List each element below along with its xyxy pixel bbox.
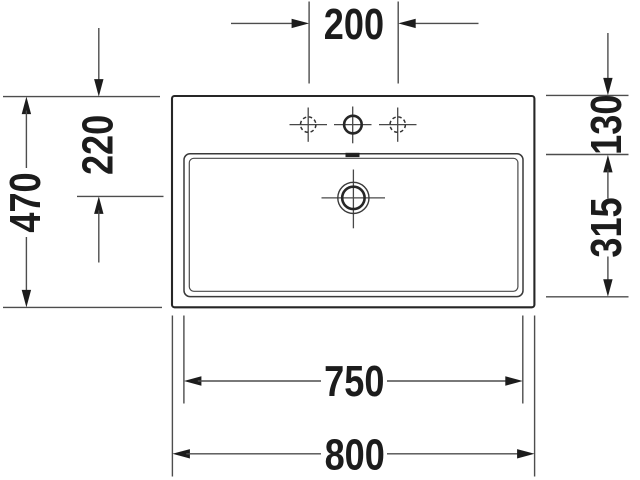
svg-text:750: 750 — [324, 358, 384, 406]
svg-text:130: 130 — [583, 95, 631, 155]
svg-text:470: 470 — [2, 172, 50, 232]
svg-text:800: 800 — [325, 431, 385, 479]
svg-text:315: 315 — [583, 197, 631, 257]
svg-text:200: 200 — [324, 1, 384, 49]
svg-text:220: 220 — [75, 115, 123, 175]
